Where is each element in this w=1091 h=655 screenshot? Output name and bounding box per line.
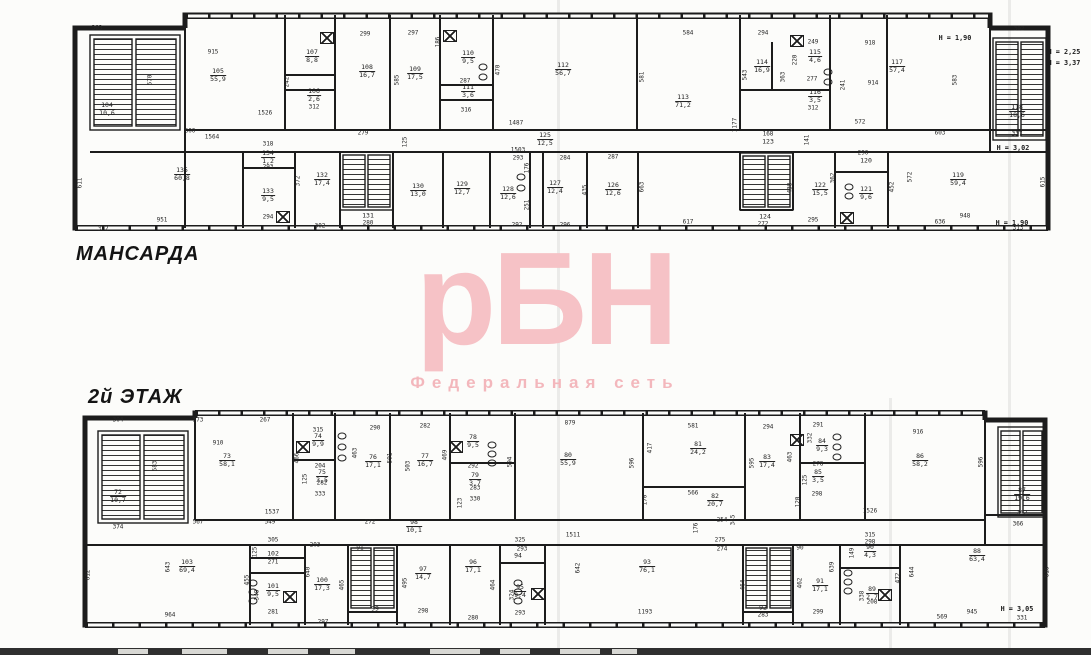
room-label: 8220,7: [707, 493, 723, 509]
dim-label: 569: [937, 614, 948, 621]
room-label: 12812,6: [500, 186, 516, 202]
dim-label: 204: [315, 463, 326, 470]
dim-label: 435: [582, 185, 589, 196]
vent-shaft-icon: [283, 591, 297, 603]
dim-label: 472: [895, 573, 902, 584]
room-label: 10816,7: [359, 64, 375, 80]
room-label: 8317,4: [759, 454, 775, 470]
wc-fixture-icon: [824, 79, 833, 86]
dim-label: 316: [461, 107, 472, 114]
dim-label: 295: [808, 217, 819, 224]
dim-label: 277: [807, 76, 818, 83]
dim-label: 149: [849, 548, 856, 559]
dim-label: 125: [302, 474, 309, 485]
dim-label: 176: [524, 163, 531, 174]
wc-fixture-icon: [844, 570, 853, 577]
dim-label: 322: [98, 226, 109, 233]
dim-label: 176: [693, 523, 700, 534]
dim-label: 333: [315, 491, 326, 498]
dim-label: 290: [858, 150, 869, 157]
wc-fixture-icon: [845, 193, 854, 200]
dim-label: 600: [185, 128, 196, 135]
vent-shaft-icon: [531, 588, 545, 600]
height-note: Н = 2,25: [1048, 48, 1081, 56]
wc-fixture-icon: [844, 588, 853, 595]
dim-label: 581: [639, 72, 646, 83]
dim-label: 915: [208, 49, 219, 56]
dim-label: 267: [260, 417, 271, 424]
dim-label: 297: [318, 619, 329, 626]
height-note: Н = 3,37: [1048, 59, 1081, 67]
dim-label: 345: [730, 515, 737, 526]
dim-label: 242: [284, 77, 291, 88]
room-label: 1163,5: [808, 89, 822, 105]
wc-fixture-icon: [479, 74, 488, 81]
dim-label: 584: [683, 30, 694, 37]
vent-shaft-icon: [790, 35, 804, 47]
dim-label: 611: [77, 178, 84, 189]
room-label: 13013,0: [410, 183, 426, 199]
floorplan-mansarda: [72, 12, 1052, 237]
room-label: 10410,6: [99, 102, 115, 118]
dim-label: 572: [907, 172, 914, 183]
wc-fixture-icon: [514, 580, 523, 587]
wc-fixture-icon: [844, 579, 853, 586]
vent-shaft-icon: [878, 589, 892, 601]
wc-fixture-icon: [517, 185, 526, 192]
dim-label: 302: [315, 223, 326, 230]
room-label: 12512,5: [537, 132, 553, 148]
dim-label: 469: [442, 450, 449, 461]
room-label: 7210,7: [110, 489, 126, 505]
dim-label: 948: [960, 213, 971, 220]
dim-label: 293: [263, 164, 274, 171]
dim-label: 254: [717, 517, 728, 524]
dim-label: 374: [113, 524, 124, 531]
dim-label: 186: [435, 37, 442, 48]
wc-fixture-icon: [479, 64, 488, 71]
dim-label: 572: [855, 119, 866, 126]
dim-label: 296: [560, 222, 571, 229]
room-label: 849,3: [816, 438, 828, 454]
dim-label: 612: [85, 570, 92, 581]
dim-label: 583: [152, 461, 159, 472]
dim-label: 251: [524, 200, 531, 211]
dim-label: 585: [394, 75, 401, 86]
dim-label: 464: [740, 580, 747, 591]
dim-label: 168: [763, 131, 774, 138]
dim-label: 636: [935, 219, 946, 226]
room-label: 1062,6: [307, 88, 321, 104]
dim-label: 280: [363, 220, 374, 227]
dim-label: 372: [295, 176, 302, 187]
dim-label: 1526: [863, 508, 877, 515]
wc-fixture-icon: [488, 451, 497, 458]
dim-label: 125: [252, 547, 259, 558]
height-note: Н = 3,02: [997, 144, 1030, 152]
dim-label: 304: [113, 417, 124, 424]
dim-label: 287: [460, 78, 471, 85]
dim-label: 203: [310, 542, 321, 549]
dim-label: 462: [797, 578, 804, 589]
dim-label: 271: [268, 559, 279, 566]
room-label: 7617,1: [365, 454, 381, 470]
dim-label: 916: [913, 429, 924, 436]
room-label: 10369,4: [179, 559, 195, 575]
dim-label: 466: [294, 453, 301, 464]
room-label: 8124,2: [690, 441, 706, 457]
dim-label: 1526: [258, 110, 272, 117]
dim-label: 293: [517, 546, 528, 553]
vent-shaft-icon: [443, 30, 457, 42]
dim-label: 616: [1044, 567, 1051, 578]
dim-label: 615: [1040, 177, 1047, 188]
room-label: 11757,4: [889, 59, 905, 75]
dim-label: 125: [802, 475, 809, 486]
vent-shaft-icon: [296, 441, 310, 453]
room-label: 120: [859, 157, 873, 164]
wc-fixture-icon: [824, 69, 833, 76]
dim-label: 964: [165, 612, 176, 619]
dim-label: 141: [804, 135, 811, 146]
dim-label: 640: [305, 567, 312, 578]
dim-label: 91: [356, 545, 363, 552]
room-label: 904,3: [864, 544, 876, 560]
dim-label: 596: [978, 457, 985, 468]
room-label: 11818,6: [1009, 104, 1025, 120]
room-label: 11256,7: [555, 62, 571, 78]
dim-label: 617: [683, 219, 694, 226]
room-label: 9714,7: [415, 566, 431, 582]
room-label: 749,9: [312, 433, 324, 449]
dim-label: 120: [795, 497, 802, 508]
dim-label: 332: [807, 433, 814, 444]
dim-label: 595: [749, 458, 756, 469]
dim-label: 331: [1017, 615, 1028, 622]
dim-label: 549: [265, 519, 276, 526]
dim-label: 951: [157, 217, 168, 224]
dim-label: 337: [1012, 131, 1023, 138]
dim-label: 566: [688, 490, 699, 497]
dim-label: 170: [642, 495, 649, 506]
dim-label: 298: [812, 491, 823, 498]
wc-fixture-icon: [338, 444, 347, 451]
dim-label: 298: [865, 539, 876, 546]
film-strip: [0, 648, 1091, 655]
dim-label: 305: [268, 537, 279, 544]
dim-label: 297: [408, 30, 419, 37]
floor-title-mansarda: МАНСАРДА: [76, 243, 199, 266]
vent-shaft-icon: [449, 441, 463, 453]
room-label: 94: [513, 552, 523, 559]
dim-label: 910: [213, 440, 224, 447]
wc-fixture-icon: [833, 454, 842, 461]
dim-label: 543: [742, 70, 749, 81]
dim-label: 642: [575, 563, 582, 574]
watermark: рБН Федеральная сеть: [400, 238, 690, 393]
room-label: 11416,9: [754, 59, 770, 75]
dim-label: 573: [193, 417, 204, 424]
dim-label: 294: [758, 30, 769, 37]
room-label: 9617,1: [465, 559, 481, 575]
room-label: 1109,5: [461, 50, 475, 66]
dim-label: 293: [515, 610, 526, 617]
dim-label: 279: [358, 130, 369, 137]
room-label: 1019,5: [266, 583, 280, 599]
dim-label: 1564: [205, 134, 219, 141]
dim-label: 1503: [511, 147, 525, 154]
dim-label: 463: [787, 452, 794, 463]
dim-label: 291: [813, 422, 824, 429]
dim-label: 495: [402, 578, 409, 589]
room-label: 1078,8: [305, 49, 319, 65]
wc-fixture-icon: [845, 184, 854, 191]
dim-label: 438: [787, 183, 794, 194]
page: МАНСАРДА 2й ЭТАЖ рБН Федеральная сеть: [0, 0, 1091, 655]
room-label: 9810,1: [406, 519, 422, 535]
dim-label: 282: [317, 480, 328, 487]
dim-label: 312: [808, 105, 819, 112]
room-label: 1113,6: [461, 84, 475, 100]
room-label: 11959,4: [950, 172, 966, 188]
watermark-subtitle: Федеральная сеть: [400, 373, 690, 393]
height-note: Н = 3,05: [1001, 605, 1034, 613]
dim-label: 283: [470, 485, 481, 492]
room-label: 10017,3: [314, 577, 330, 593]
dim-label: 603: [935, 130, 946, 137]
dim-label: 643: [165, 562, 172, 573]
wc-fixture-icon: [833, 444, 842, 451]
wc-fixture-icon: [338, 433, 347, 440]
room-label: 8658,2: [912, 453, 928, 469]
room-label: 12215,5: [812, 182, 828, 198]
dim-label: 283: [758, 612, 769, 619]
dim-label: 123: [457, 498, 464, 509]
wc-fixture-icon: [514, 598, 523, 605]
dim-label: 275: [715, 537, 726, 544]
dim-label: 302: [1014, 26, 1025, 33]
dim-label: 470: [495, 65, 502, 76]
dim-label: 1537: [265, 509, 279, 516]
dim-label: 663: [639, 182, 646, 193]
room-label: 99: [370, 605, 380, 612]
room-label: 12612,6: [605, 182, 621, 198]
wc-fixture-icon: [833, 434, 842, 441]
dim-label: 1487: [509, 120, 523, 127]
dim-label: 241: [840, 80, 847, 91]
dim-label: 287: [608, 154, 619, 161]
wc-fixture-icon: [514, 589, 523, 596]
room-label: 9376,1: [639, 559, 655, 575]
dim-label: 278: [813, 461, 824, 468]
room-label: 8863,4: [969, 548, 985, 564]
room-label: 789,5: [467, 434, 479, 450]
dim-label: 272: [758, 221, 769, 228]
dim-label: 879: [565, 420, 576, 427]
floorplan-2nd-floor: [80, 403, 1055, 633]
dim-label: 281: [268, 609, 279, 616]
dim-label: 303: [92, 25, 103, 32]
dim-label: 463: [352, 448, 359, 459]
vent-shaft-icon: [790, 434, 804, 446]
dim-label: 465: [339, 580, 346, 591]
dim-label: 945: [967, 609, 978, 616]
dim-label: 294: [263, 214, 274, 221]
room-label: 12712,4: [547, 180, 563, 196]
dim-label: 1177: [732, 118, 739, 132]
dim-label: 503: [405, 461, 412, 472]
vent-shaft-icon: [276, 211, 290, 223]
dim-label: 596: [629, 458, 636, 469]
dim-label: 294: [763, 424, 774, 431]
room-label: 11371,2: [675, 94, 691, 110]
room-label: 7716,7: [417, 453, 433, 469]
dim-label: 452: [889, 182, 896, 193]
dim-label: 1193: [638, 609, 652, 616]
room-label: 12912,7: [454, 181, 470, 197]
dim-label: 249: [808, 39, 819, 46]
room-label: 8719,6: [1014, 487, 1030, 503]
dim-label: 292: [512, 222, 523, 229]
room-label: 13560,8: [174, 167, 190, 183]
dim-label: 918: [865, 40, 876, 47]
dim-label: 362: [830, 173, 837, 184]
dim-label: 570: [147, 75, 154, 86]
room-label: 9117,1: [812, 578, 828, 594]
dim-label: 315: [865, 532, 876, 539]
dim-label: 299: [813, 609, 824, 616]
room-label: 10917,5: [407, 66, 423, 82]
dim-label: 366: [1013, 521, 1024, 528]
dim-label: 272: [365, 519, 376, 526]
room-label: 1219,6: [859, 186, 873, 202]
dim-label: 298: [418, 608, 429, 615]
dim-label: 312: [309, 104, 320, 111]
room-label: 1154,6: [808, 49, 822, 65]
watermark-logo: рБН: [400, 238, 690, 359]
room-label: 1339,5: [261, 188, 275, 204]
dim-label: 417: [647, 443, 654, 454]
dim-label: 644: [909, 567, 916, 578]
dim-label: 90: [796, 545, 803, 552]
wc-fixture-icon: [517, 174, 526, 181]
dim-label: 220: [792, 55, 799, 66]
room-label: 13217,4: [314, 172, 330, 188]
wc-fixture-icon: [338, 455, 347, 462]
dim-label: 567: [193, 519, 204, 526]
dim-label: 594: [507, 457, 514, 468]
dim-label: 581: [688, 423, 699, 430]
dim-label: 274: [717, 546, 728, 553]
dim-label: 639: [829, 562, 836, 573]
dim-label: 290: [370, 425, 381, 432]
dim-label: 125: [402, 137, 409, 148]
wc-fixture-icon: [488, 442, 497, 449]
wc-fixture-icon: [488, 460, 497, 467]
height-note: Н = 1,90: [939, 34, 972, 42]
height-note: Н = 1,90: [996, 219, 1029, 227]
dim-label: 280: [468, 615, 479, 622]
dim-label: 325: [515, 537, 526, 544]
dim-label: 284: [560, 155, 571, 162]
dim-label: 318: [263, 141, 274, 148]
room-label: 102: [266, 550, 280, 557]
vent-shaft-icon: [840, 212, 854, 224]
dim-label: 1511: [566, 532, 580, 539]
vent-shaft-icon: [320, 32, 334, 44]
wc-fixture-icon: [249, 589, 258, 596]
dim-label: 363: [780, 72, 787, 83]
room-label: 10555,9: [210, 68, 226, 84]
dim-label: 583: [952, 75, 959, 86]
dim-label: 208: [867, 599, 878, 606]
wc-fixture-icon: [249, 598, 258, 605]
dim-label: 293: [513, 155, 524, 162]
wc-fixture-icon: [249, 580, 258, 587]
room-label: 853,5: [812, 469, 824, 485]
dim-label: 315: [313, 427, 324, 434]
room-label: 123: [761, 138, 775, 145]
dim-label: 299: [360, 31, 371, 38]
dim-label: 464: [490, 580, 497, 591]
dim-label: 302: [1017, 510, 1028, 517]
room-label: 7358,1: [219, 453, 235, 469]
room-label: 8055,9: [560, 452, 576, 468]
dim-label: 338: [859, 591, 866, 602]
dim-label: 292: [468, 463, 479, 470]
dim-label: 914: [868, 80, 879, 87]
dim-label: 591: [387, 453, 394, 464]
dim-label: 282: [420, 423, 431, 430]
dim-label: 330: [470, 496, 481, 503]
